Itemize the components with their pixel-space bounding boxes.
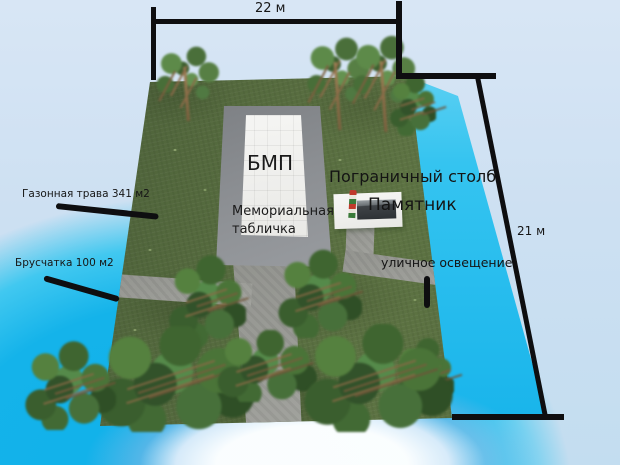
label-paving-area: Брусчатка 100 м2 xyxy=(15,257,114,269)
dimension-tick-top-left xyxy=(151,7,156,80)
bushes-outside-left xyxy=(22,340,116,430)
dimension-tick-bottom-right xyxy=(452,414,564,420)
dimension-tick-top-right xyxy=(396,1,402,79)
dimension-label-height: 21 м xyxy=(517,224,545,238)
dimension-line-width xyxy=(153,19,399,24)
label-street-lighting: уличное освещение xyxy=(381,255,512,270)
tree-top-left xyxy=(148,46,226,126)
dimension-line-right-top xyxy=(396,73,496,79)
bushes-bottom-right xyxy=(296,324,454,432)
label-monument: Памятник xyxy=(368,195,457,215)
memorial-park-plan-scene: 22 м 21 м Газонная трава 341 м2 Брусчатк… xyxy=(0,0,620,465)
street-light-marker xyxy=(424,276,430,308)
label-lawn-grass-area: Газонная трава 341 м2 xyxy=(22,188,150,200)
label-bmp: БМП xyxy=(247,151,293,175)
bush-top-right-corner xyxy=(390,72,436,136)
label-border-post: Пограничный столб xyxy=(329,167,496,186)
dimension-label-width: 22 м xyxy=(255,1,285,16)
label-memorial-plaque: Мемориальная табличка xyxy=(232,203,350,238)
